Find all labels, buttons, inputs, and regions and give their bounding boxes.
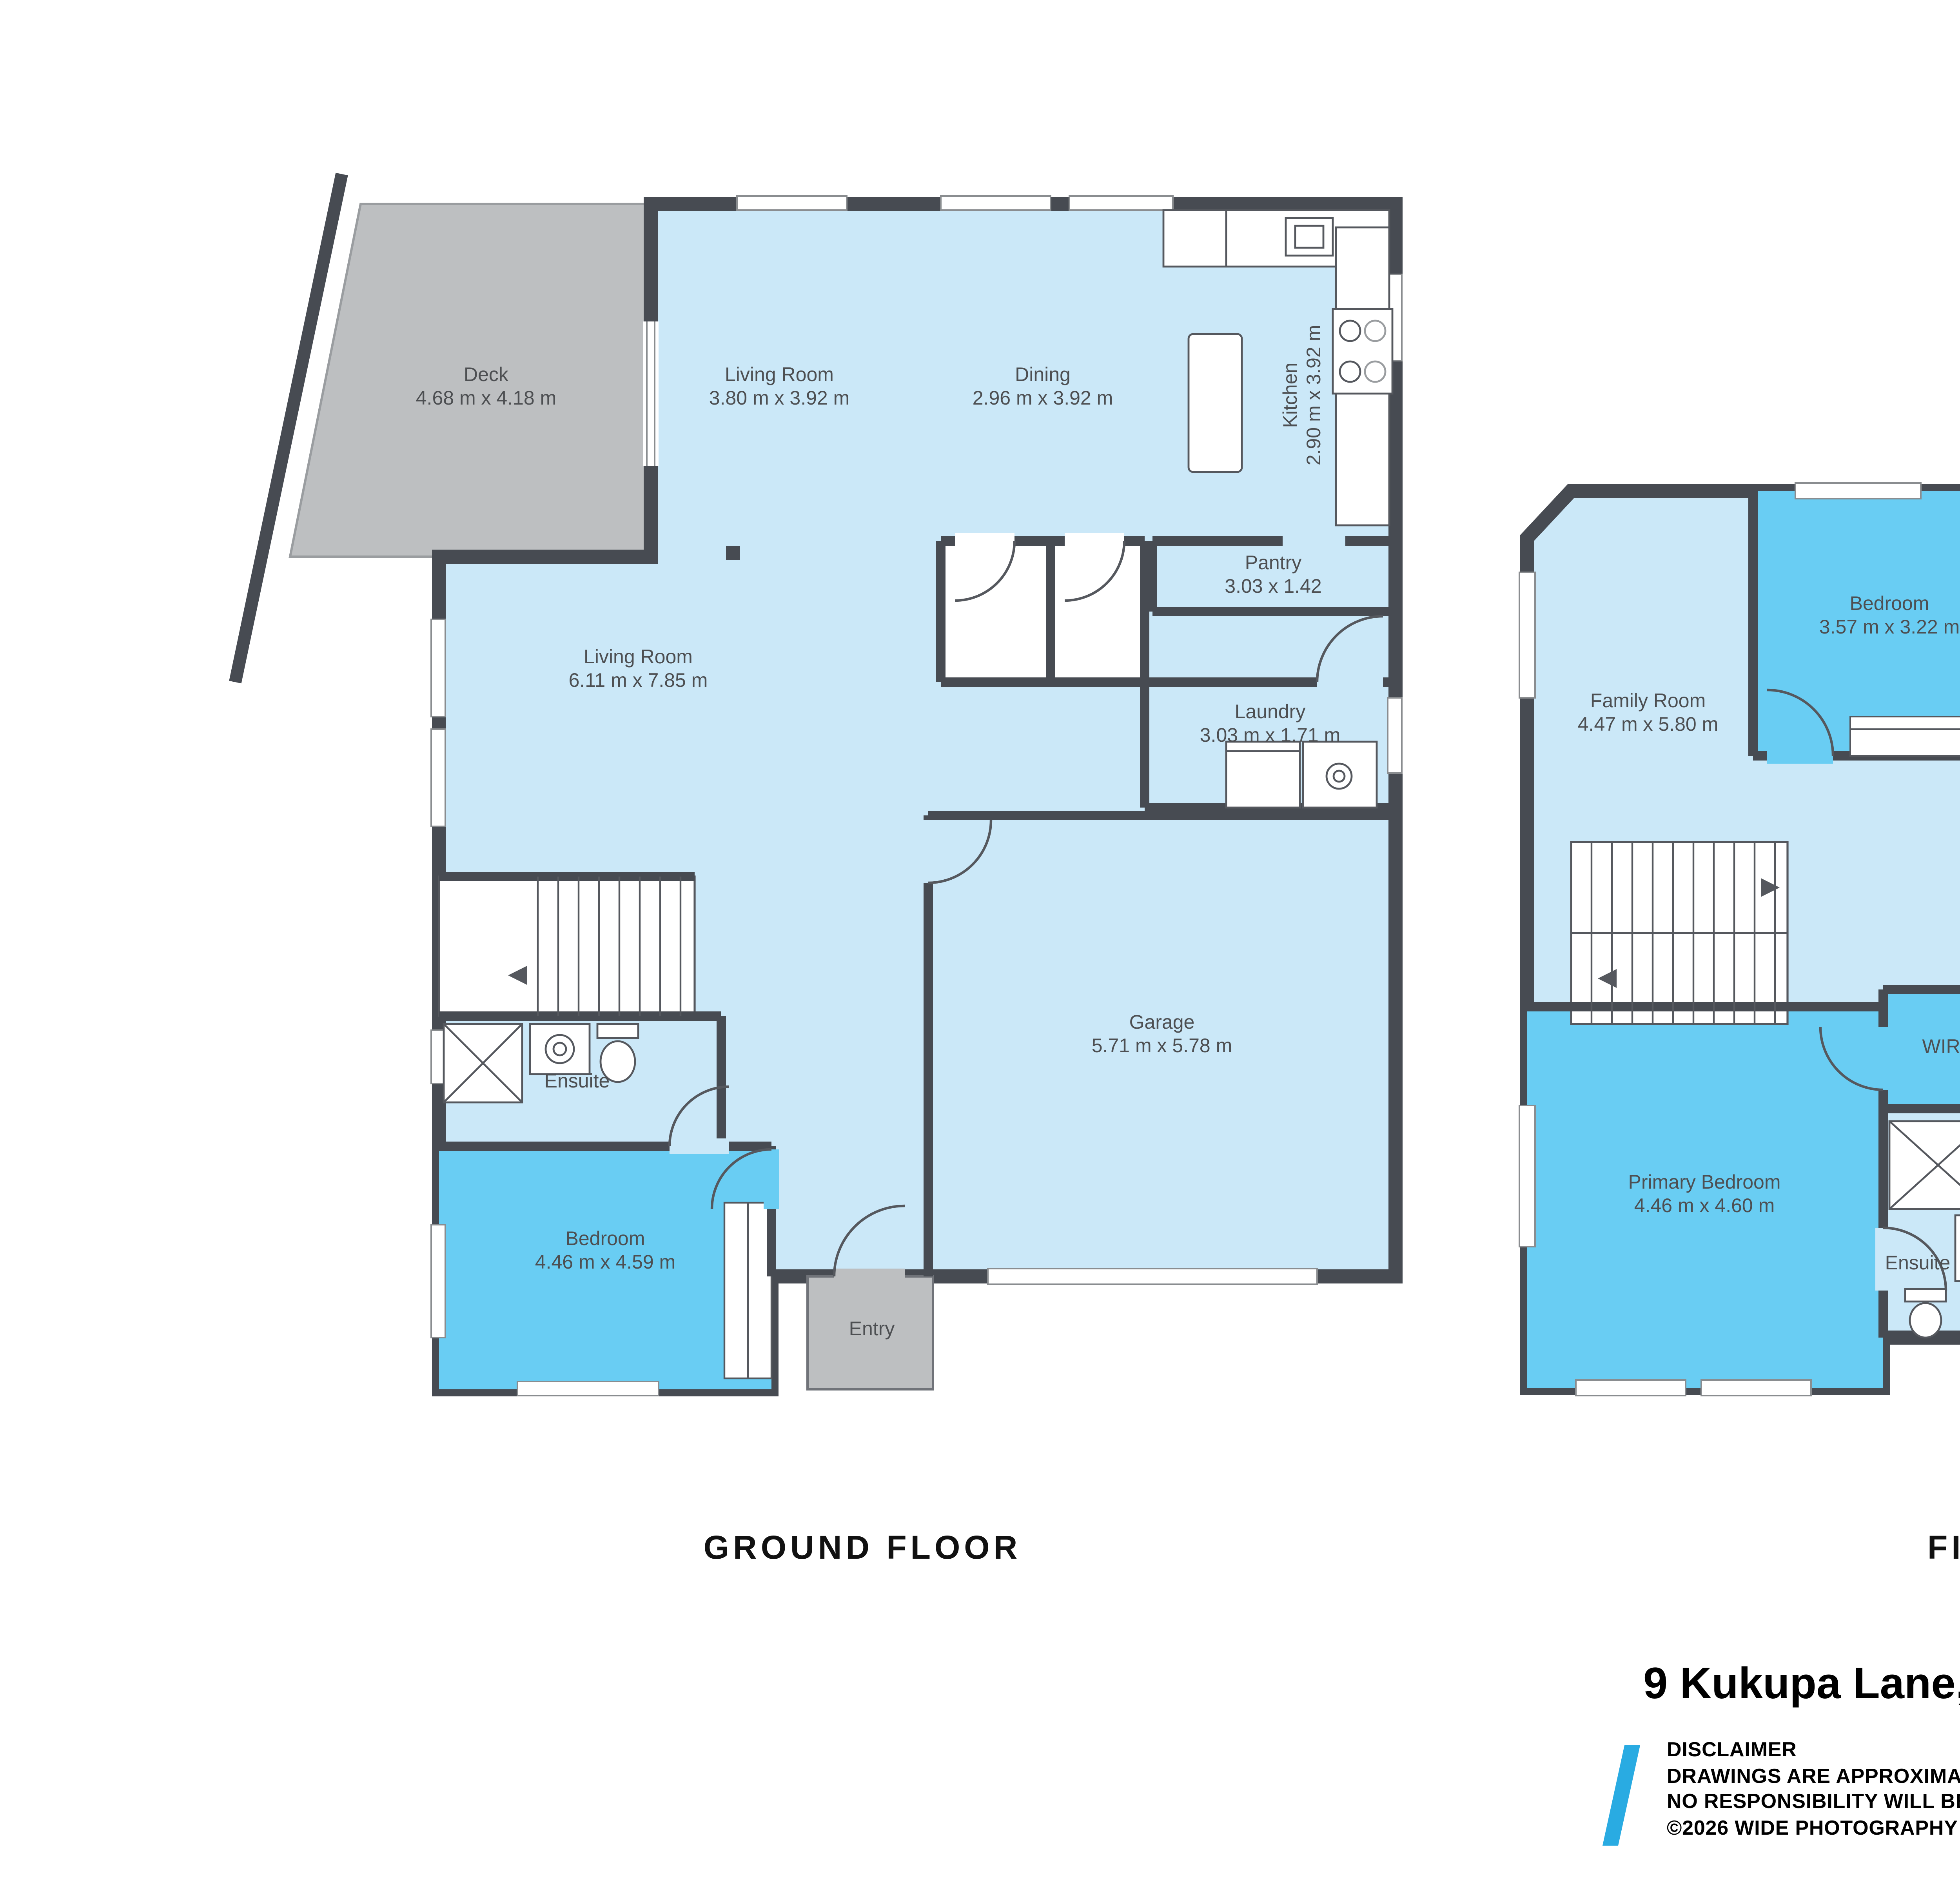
disclaimer-line-2: NO RESPONSIBILITY WILL BE TAKEN FOR ANY … — [1667, 1789, 1960, 1815]
room-label-ensuite-first: Ensuite — [1885, 1252, 1951, 1276]
disclaimer-line-1: DRAWINGS ARE APPROXIMATE AND FOR ILLUSTR… — [1667, 1763, 1960, 1789]
first-floor-plan — [1482, 431, 1960, 1466]
room-label-kitchen: Kitchen 2.90 m x 3.92 m — [1279, 325, 1327, 466]
column — [726, 546, 740, 560]
ground-floor-plan — [204, 165, 1427, 1419]
shower-icon — [444, 1024, 522, 1102]
floorplan-page: N Deck 4.68 m x 4.18 m Living Room 3.80 … — [0, 0, 1960, 1877]
room-label-bedroom-ground: Bedroom 4.46 m x 4.59 m — [535, 1228, 676, 1275]
first-floor-title: FIRST FLOOR — [1927, 1530, 1960, 1568]
room-label-wir: WIR — [1922, 1036, 1960, 1059]
room-label-entry: Entry — [849, 1318, 895, 1341]
island-counter — [1189, 334, 1242, 472]
sink-icon — [1955, 1215, 1960, 1281]
bathroom-floor — [941, 541, 1145, 682]
room-label-living-room-2: Living Room 6.11 m x 7.85 m — [569, 646, 708, 693]
stove-icon — [1333, 309, 1392, 394]
sink-icon — [530, 1024, 590, 1074]
room-label-living-room-1: Living Room 3.80 m x 3.92 m — [709, 364, 850, 411]
wardrobe — [724, 1203, 771, 1378]
room-label-garage: Garage 5.71 m x 5.78 m — [1092, 1011, 1232, 1058]
disclaimer-title: DISCLAIMER — [1667, 1737, 1960, 1763]
room-label-dining: Dining 2.96 m x 3.92 m — [973, 364, 1113, 411]
room-label-pantry: Pantry 3.03 x 1.42 — [1225, 552, 1321, 599]
shower-icon — [1889, 1121, 1960, 1209]
room-label-bedroom-1: Bedroom 3.57 m x 3.22 m — [1819, 593, 1960, 640]
room-label-deck: Deck 4.68 m x 4.18 m — [416, 364, 557, 411]
room-label-ensuite-ground: Ensuite — [544, 1070, 610, 1094]
room-label-family-room: Family Room 4.47 m x 5.80 m — [1578, 690, 1719, 737]
accent-slash — [1576, 1733, 1670, 1858]
stairs-floor — [439, 877, 695, 1016]
disclaimer-block: DISCLAIMER DRAWINGS ARE APPROXIMATE AND … — [1667, 1737, 1960, 1841]
room-label-laundry: Laundry 3.03 m x 1.71 m — [1200, 701, 1341, 748]
wardrobes — [1850, 717, 1960, 756]
copyright-line: ©2026 WIDE PHOTOGRAPHY — [1667, 1815, 1960, 1841]
room-label-primary-bedroom: Primary Bedroom 4.46 m x 4.60 m — [1628, 1171, 1781, 1218]
address-title: 9 Kukupa Lane, Long Bay — [1643, 1659, 1960, 1709]
ground-floor-title: GROUND FLOOR — [704, 1530, 1022, 1568]
